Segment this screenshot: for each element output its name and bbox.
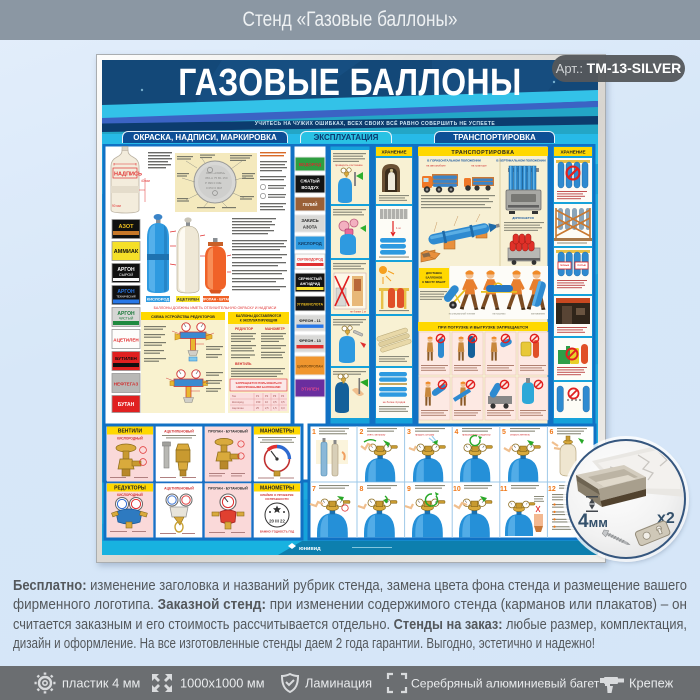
svg-text:ВОДОРОД: ВОДОРОД bbox=[299, 162, 322, 167]
svg-text:ВАЖНО! ГОДНОСТЬ ГОД: ВАЖНО! ГОДНОСТЬ ГОД bbox=[260, 530, 294, 534]
svg-text:ЦИКЛОПРОПАН: ЦИКЛОПРОПАН bbox=[297, 365, 324, 369]
svg-text:АЦЕТИЛЕНОВЫЙ: АЦЕТИЛЕНОВЫЙ bbox=[164, 430, 194, 434]
svg-text:АЗОТ: АЗОТ bbox=[119, 224, 135, 230]
svg-text:ВОЗДУХ: ВОЗДУХ bbox=[301, 185, 318, 190]
svg-text:ПОЛНЫЕ: ПОЛНЫЕ bbox=[560, 265, 570, 267]
svg-text:4мм: 4мм bbox=[578, 511, 608, 532]
svg-text:ДОСТАВКА: ДОСТАВКА bbox=[426, 271, 443, 275]
svg-text:ПРОПАН - БУТАНОВЫЙ: ПРОПАН - БУТАНОВЫЙ bbox=[208, 430, 248, 434]
svg-text:12: 12 bbox=[548, 486, 556, 493]
svg-text:3: 3 bbox=[407, 429, 411, 436]
svg-text:СЕРОВОДОРОД: СЕРОВОДОРОД bbox=[297, 258, 324, 262]
svg-text:7: 7 bbox=[312, 486, 316, 493]
svg-text:40 мм: 40 мм bbox=[141, 179, 150, 183]
svg-text:0,3: 0,3 bbox=[281, 406, 285, 410]
svg-text:юнивид: юнивид bbox=[299, 546, 321, 552]
svg-text:356-А 75 В1 150: 356-А 75 В1 150 bbox=[205, 176, 228, 180]
svg-text:ФРЕОН - 11: ФРЕОН - 11 bbox=[299, 319, 320, 323]
svg-text:пластик 4 мм: пластик 4 мм bbox=[62, 676, 140, 691]
svg-text:СХЕМА УСТРОЙСТВА РЕДУКТОРОВ: СХЕМА УСТРОЙСТВА РЕДУКТОРОВ bbox=[151, 315, 215, 319]
svg-text:К ЭКСПЛУАТИРУЮЩИМ: К ЭКСПЛУАТИРУЮЩИМ bbox=[240, 319, 278, 323]
svg-text:ТЕХНИЧЕСКИЙ: ТЕХНИЧЕСКИЙ bbox=[116, 295, 135, 299]
svg-text:ХРАНЕНИЕ: ХРАНЕНИЕ bbox=[381, 150, 406, 155]
svg-text:150: 150 bbox=[256, 400, 261, 404]
svg-text:ЧИСТЫЙ: ЧИСТЫЙ bbox=[119, 317, 134, 321]
svg-text:РЕДУКТОРЫ: РЕДУКТОРЫ bbox=[114, 486, 146, 492]
svg-text:Крепеж: Крепеж bbox=[629, 676, 674, 691]
svg-text:ТРАНСПОРТИРОВКА: ТРАНСПОРТИРОВКА bbox=[451, 150, 514, 156]
svg-text:открыть вентиль: открыть вентиль bbox=[510, 434, 531, 437]
svg-text:АЦЕТИЛЕН: АЦЕТИЛЕН bbox=[113, 338, 139, 343]
svg-text:ПРОПАН - БУТАН: ПРОПАН - БУТАН bbox=[202, 298, 231, 302]
svg-text:БУТИЛЕН: БУТИЛЕН bbox=[115, 356, 137, 361]
svg-text:ГЕЛИЙ: ГЕЛИЙ bbox=[303, 202, 318, 207]
svg-text:снять заглушку: снять заглушку bbox=[367, 434, 386, 437]
svg-text:К МЕСТУ РАБОТ: К МЕСТУ РАБОТ bbox=[422, 280, 445, 284]
svg-text:ЭТИЛЕН: ЭТИЛЕН bbox=[301, 387, 319, 392]
svg-text:КИСЛОРОДНЫЙ: КИСЛОРОДНЫЙ bbox=[117, 437, 143, 441]
svg-text:НЕИСПРАВНЫМИ БАЛЛОНАМИ: НЕИСПРАВНЫМИ БАЛЛОНАМИ bbox=[237, 385, 281, 389]
svg-text:ХРАНЕНИЕ: ХРАНЕНИЕ bbox=[560, 150, 585, 155]
svg-text:Ацетилен: Ацетилен bbox=[232, 406, 244, 410]
svg-text:0,5: 0,5 bbox=[281, 400, 285, 404]
svg-text:2,5: 2,5 bbox=[265, 406, 269, 410]
svg-text:кантованием: кантованием bbox=[531, 314, 545, 316]
svg-text:не более 4 рядов: не более 4 рядов bbox=[383, 400, 406, 404]
svg-text:СЖАТЫЙ: СЖАТЫЙ bbox=[300, 179, 319, 184]
svg-text:МАНОМЕТР: МАНОМЕТР bbox=[265, 327, 286, 331]
svg-text:6: 6 bbox=[550, 429, 554, 436]
svg-text:10: 10 bbox=[453, 486, 461, 493]
svg-text:20 III 22: 20 III 22 bbox=[269, 519, 285, 524]
svg-text:2: 2 bbox=[360, 429, 364, 436]
svg-text:на автомобиле: на автомобиле bbox=[426, 164, 446, 168]
svg-text:ОАО «КЗММ»: ОАО «КЗММ» bbox=[206, 171, 226, 175]
svg-text:В ГОРИЗОНТАЛЬНОМ ПОЛОЖЕНИИ: В ГОРИЗОНТАЛЬНОМ ПОЛОЖЕНИИ bbox=[427, 159, 480, 163]
svg-text:на специальной тележке: на специальной тележке bbox=[449, 313, 476, 316]
svg-text:11: 11 bbox=[500, 486, 508, 493]
svg-text:1: 1 bbox=[312, 429, 316, 436]
svg-text:БАЛЛОНЫ ДОЛЖНЫ ИМЕТЬ ОТЛИЧИТЕЛ: БАЛЛОНЫ ДОЛЖНЫ ИМЕТЬ ОТЛИЧИТЕЛЬНУЮ ОКРАС… bbox=[154, 306, 277, 310]
svg-text:90 мм: 90 мм bbox=[112, 204, 121, 208]
svg-text:БУТАН: БУТАН bbox=[118, 402, 135, 408]
svg-text:АЦЕТИЛЕНОВЫЙ: АЦЕТИЛЕНОВЫЙ bbox=[164, 487, 194, 491]
svg-text:БАЛЛОНОВ: БАЛЛОНОВ bbox=[426, 276, 443, 280]
svg-text:1 м: 1 м bbox=[396, 226, 401, 230]
svg-text:P3: P3 bbox=[273, 394, 277, 398]
svg-text:АЗОТА: АЗОТА bbox=[303, 225, 317, 230]
svg-text:ПРИ ПОГРУЗКЕ И ВЫГРУЗКЕ ЗАПРЕЩ: ПРИ ПОГРУЗКЕ И ВЫГРУЗКЕ ЗАПРЕЩАЕТСЯ bbox=[438, 325, 528, 330]
svg-text:БАЛЛОНЫ ДОСТАВЛЯЮТСЯ: БАЛЛОНЫ ДОСТАВЛЯЮТСЯ bbox=[236, 314, 282, 318]
svg-text:МАНОМЕТРЫ: МАНОМЕТРЫ bbox=[260, 486, 294, 492]
svg-text:В ВЕРТИКАЛЬНОМ ПОЛОЖЕНИИ: В ВЕРТИКАЛЬНОМ ПОЛОЖЕНИИ bbox=[496, 159, 545, 163]
svg-text:РЕДУКТОР: РЕДУКТОР bbox=[235, 327, 254, 331]
svg-text:5: 5 bbox=[502, 429, 506, 436]
svg-text:на носилках: на носилках bbox=[493, 314, 507, 316]
svg-text:СЕРНИСТЫЙ: СЕРНИСТЫЙ bbox=[298, 277, 322, 281]
svg-text:НАДПИСЬ: НАДПИСЬ bbox=[114, 172, 142, 178]
svg-text:ФРЕОН - 13: ФРЕОН - 13 bbox=[299, 339, 321, 343]
svg-text:КИСЛОРОДНЫЙ: КИСЛОРОДНЫЙ bbox=[117, 493, 143, 497]
svg-text:ВЕНТИЛЬ: ВЕНТИЛЬ bbox=[235, 362, 252, 366]
svg-text:ВЕНТИЛИ: ВЕНТИЛИ bbox=[118, 429, 143, 435]
svg-text:продуть штуцер: продуть штуцер bbox=[415, 434, 435, 437]
svg-text:1000x1000 мм: 1000x1000 мм bbox=[180, 676, 265, 691]
svg-text:ЗАКИСЬ: ЗАКИСЬ bbox=[301, 218, 318, 223]
svg-text:НЕФТЕГАЗ: НЕФТЕГАЗ bbox=[114, 382, 139, 387]
svg-text:0 053 0 9КЛ: 0 053 0 9КЛ bbox=[206, 186, 222, 190]
svg-text:P1: P1 bbox=[256, 394, 260, 398]
svg-text:КИСЛОРОД: КИСЛОРОД bbox=[298, 241, 322, 246]
svg-text:не ближе 1 м: не ближе 1 м bbox=[350, 310, 366, 314]
svg-text:P4: P4 bbox=[281, 394, 285, 398]
svg-text:УГЛЕКИСЛОТА: УГЛЕКИСЛОТА bbox=[297, 303, 324, 307]
svg-text:СЫРОЙ: СЫРОЙ bbox=[119, 273, 134, 277]
svg-text:4: 4 bbox=[455, 429, 459, 436]
svg-text:АРГОН: АРГОН bbox=[117, 289, 135, 295]
svg-text:1,5: 1,5 bbox=[273, 406, 277, 410]
svg-text:ИСПРАВНОСТИ: ИСПРАВНОСТИ bbox=[265, 497, 288, 501]
svg-text:Серебряный алюминиевый багет: Серебряный алюминиевый багет bbox=[411, 677, 600, 691]
svg-text:АЦЕТИЛЕН: АЦЕТИЛЕН bbox=[177, 297, 199, 302]
svg-text:Р 999 0 03Е: Р 999 0 03Е bbox=[205, 181, 222, 185]
svg-text:проверить состояние: проверить состояние bbox=[335, 163, 363, 167]
svg-text:МАНОМЕТРЫ: МАНОМЕТРЫ bbox=[260, 429, 294, 435]
svg-text:АНГИДРИД: АНГИДРИД bbox=[300, 282, 320, 286]
svg-text:Кислород: Кислород bbox=[232, 400, 244, 404]
svg-text:Ламинация: Ламинация bbox=[305, 676, 372, 691]
svg-text:ПРОПАН - БУТАНОВЫЙ: ПРОПАН - БУТАНОВЫЙ bbox=[208, 487, 248, 491]
svg-text:КИСЛОРОД: КИСЛОРОД bbox=[147, 297, 170, 302]
svg-text:3,5: 3,5 bbox=[273, 400, 277, 404]
svg-text:9: 9 bbox=[407, 486, 411, 493]
svg-text:ПУСТЫЕ: ПУСТЫЕ bbox=[577, 265, 586, 267]
svg-text:P2: P2 bbox=[265, 394, 269, 398]
svg-text:ДОПУСКАЕТСЯ: ДОПУСКАЕТСЯ bbox=[512, 216, 533, 220]
svg-text:на тракторе: на тракторе bbox=[471, 164, 487, 168]
svg-text:8: 8 bbox=[360, 486, 364, 493]
svg-text:АММИАК: АММИАК bbox=[114, 249, 139, 255]
